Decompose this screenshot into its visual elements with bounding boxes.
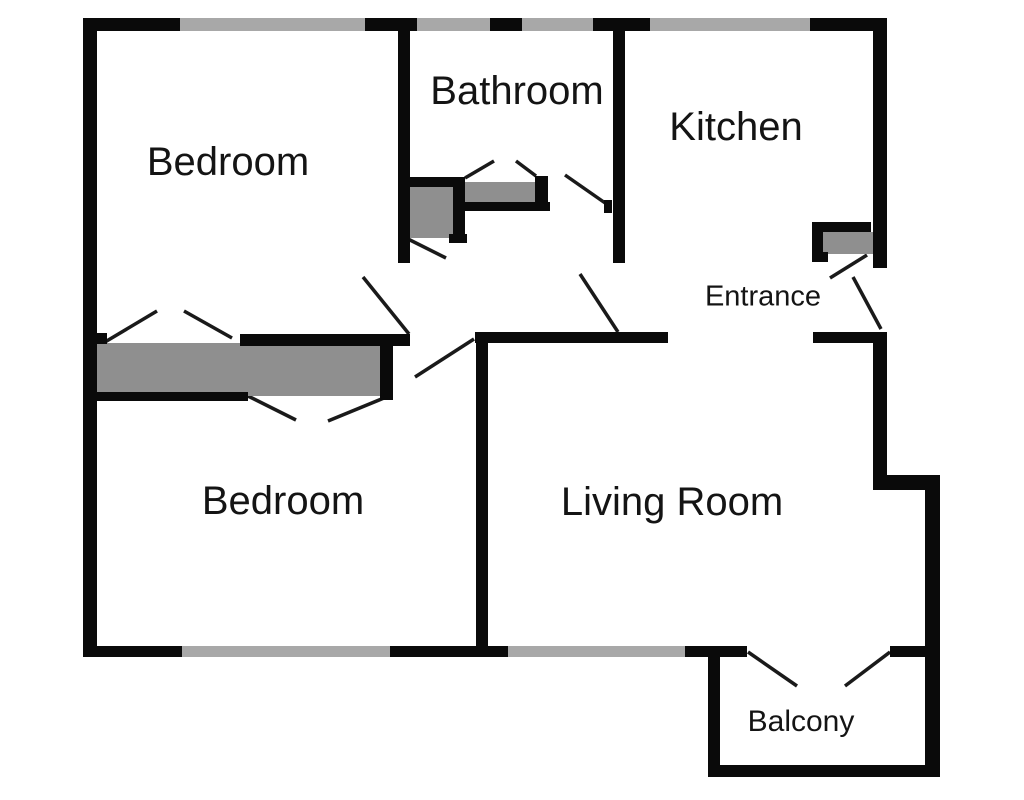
top-wall-seg-3 — [490, 18, 522, 31]
bathroom-door-stop — [604, 200, 612, 213]
vanity-bottom-bar — [460, 202, 550, 211]
closet2-bifold-left — [248, 396, 296, 420]
entrance-cab-foot — [812, 252, 828, 262]
right-wall-mid — [873, 332, 887, 475]
living-room-window — [508, 646, 685, 657]
bathroom-left-wall — [398, 30, 410, 263]
bathroom-door — [565, 175, 608, 205]
closet1-bifold-left — [105, 311, 157, 342]
closet1-bifold-right — [184, 311, 232, 338]
right-wall-lower — [925, 475, 940, 775]
kitchen-left-wall — [613, 30, 625, 263]
vanity-bifold-left — [465, 161, 494, 178]
vanity-bifold-right — [516, 161, 536, 176]
entrance-door-leaf-1 — [830, 255, 867, 278]
bottom-wall-seg-1 — [83, 646, 182, 657]
balcony-bottom-wall — [708, 765, 940, 777]
bedroom2-window — [182, 646, 390, 657]
closet2-bifold-right — [328, 398, 384, 421]
bedroom1-window — [180, 18, 365, 31]
bedroom1-door — [363, 277, 409, 334]
room-label-bedroom-bottom: Bedroom — [202, 481, 364, 521]
closet-right-bar — [380, 334, 393, 400]
kitchen-window — [650, 18, 810, 31]
bottom-wall-seg-4 — [890, 646, 928, 657]
right-wall-upper — [873, 18, 887, 268]
entrance-cabinet — [823, 232, 873, 254]
bottom-wall-seg-3 — [685, 646, 747, 657]
bottom-wall-seg-2 — [390, 646, 508, 657]
bathroom-window-1 — [417, 18, 490, 31]
room-label-bathroom: Bathroom — [430, 71, 603, 111]
closet-bottom-bar — [93, 392, 248, 401]
bathroom-window-2 — [522, 18, 593, 31]
bathroom-inner-door — [406, 238, 446, 258]
room-label-living-room: Living Room — [561, 482, 783, 522]
entrance-door-leaf-2 — [853, 277, 881, 329]
shower — [410, 187, 455, 238]
room-label-entrance: Entrance — [705, 283, 821, 312]
closet-2 — [248, 345, 380, 396]
closet-left-stub — [93, 333, 107, 344]
balcony-door-left — [748, 652, 797, 686]
bedroom2-door — [415, 339, 474, 377]
balcony-door-right — [845, 652, 890, 686]
room-label-bedroom-top: Bedroom — [147, 142, 309, 182]
room-label-balcony: Balcony — [748, 707, 855, 737]
hall-wall-right — [813, 332, 873, 343]
bathroom-vanity — [462, 182, 537, 202]
kitchen-door — [580, 274, 618, 332]
top-wall-seg-1 — [83, 18, 180, 31]
hall-wall-left — [475, 332, 668, 343]
room-label-kitchen: Kitchen — [669, 107, 802, 147]
floor-plan: Bedroom Bathroom Kitchen Entrance Bedroo… — [0, 0, 1024, 800]
shower-foot — [449, 234, 467, 243]
closet-1 — [97, 343, 248, 392]
balcony-left-wall — [708, 657, 720, 765]
bedroom-divider-wall — [476, 338, 488, 647]
